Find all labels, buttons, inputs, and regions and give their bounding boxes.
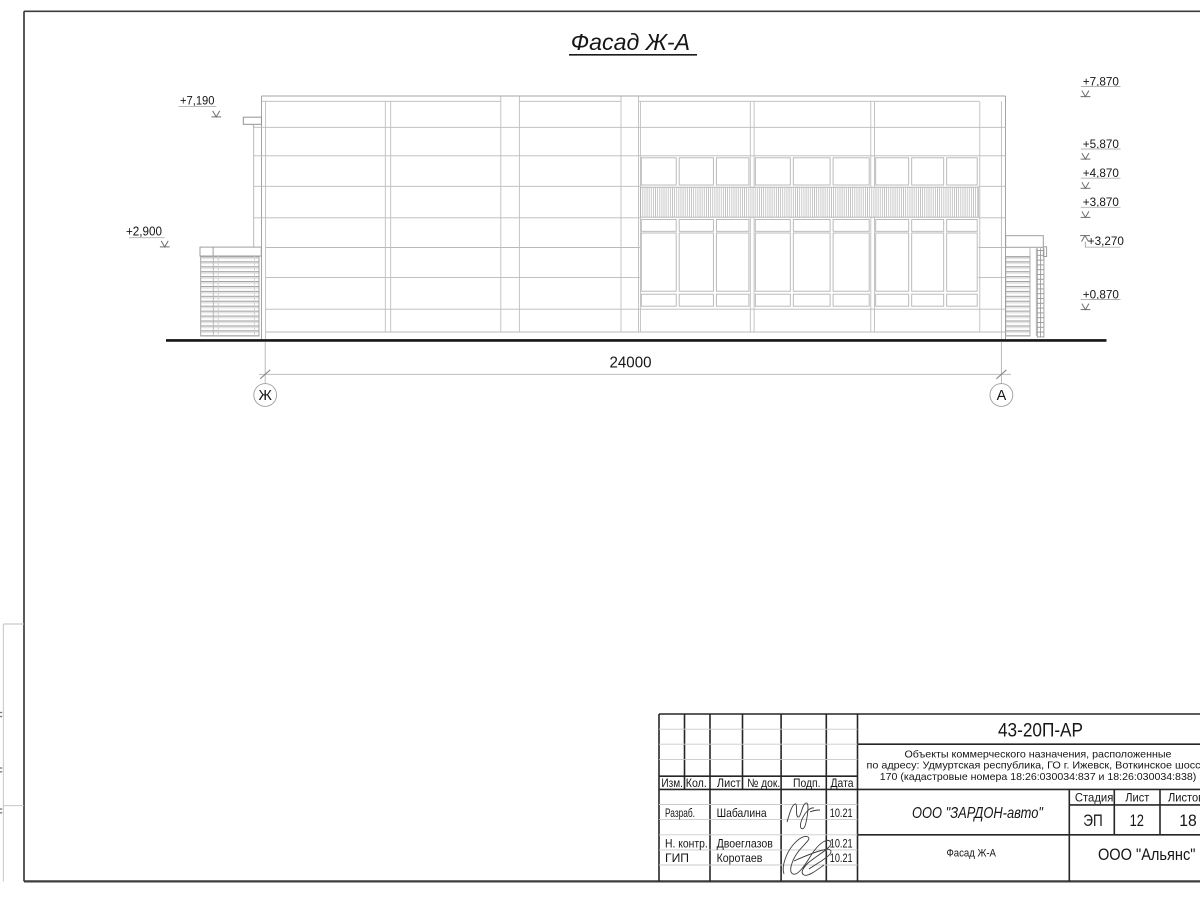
svg-text:+3,270: +3,270 bbox=[1088, 234, 1124, 248]
svg-text:ООО "ЗАРДОН-авто": ООО "ЗАРДОН-авто" bbox=[912, 805, 1044, 822]
svg-text:по адресу: Удмуртская республи: по адресу: Удмуртская республика, ГО г. … bbox=[867, 760, 1200, 772]
svg-text:18: 18 bbox=[1179, 811, 1197, 830]
svg-text:Лист: Лист bbox=[1125, 791, 1149, 805]
svg-text:Фасад Ж-А: Фасад Ж-А bbox=[946, 848, 996, 860]
svg-text:24000: 24000 bbox=[610, 355, 652, 372]
svg-text:Листов: Листов bbox=[1168, 791, 1200, 805]
svg-text:12: 12 bbox=[1130, 811, 1144, 830]
svg-text:ООО "Альянс": ООО "Альянс" bbox=[1098, 846, 1196, 864]
svg-text:170 (кадастровые номера 18:26:: 170 (кадастровые номера 18:26:030034:837… bbox=[880, 772, 1197, 783]
svg-text:Дата: Дата bbox=[831, 776, 854, 790]
svg-text:Разраб.: Разраб. bbox=[665, 806, 695, 820]
svg-text:+2,900: +2,900 bbox=[126, 224, 162, 238]
svg-text:ГИП: ГИП bbox=[665, 851, 689, 865]
svg-text:Подп.: Подп. bbox=[793, 776, 821, 790]
svg-text:Н. контр.: Н. контр. bbox=[665, 836, 708, 850]
svg-text:Фасад Ж-А: Фасад Ж-А bbox=[571, 29, 690, 55]
svg-text:Ж: Ж bbox=[259, 388, 273, 404]
svg-text:Кол.: Кол. bbox=[686, 776, 707, 790]
svg-text:Стадия: Стадия bbox=[1075, 791, 1113, 805]
svg-text:Двоеглазов: Двоеглазов bbox=[717, 836, 773, 850]
svg-text:№ док.: № док. bbox=[747, 776, 780, 790]
svg-text:ЭП: ЭП bbox=[1083, 811, 1102, 830]
svg-text:Лист: Лист bbox=[717, 776, 741, 790]
svg-text:10.21: 10.21 bbox=[830, 806, 853, 820]
svg-text:+7,190: +7,190 bbox=[180, 94, 215, 108]
svg-text:43-20П-АР: 43-20П-АР bbox=[998, 720, 1083, 742]
svg-text:Коротаев: Коротаев bbox=[717, 851, 763, 865]
svg-text:Шабалина: Шабалина bbox=[717, 806, 767, 820]
svg-text:Объекты коммерческого назначен: Объекты коммерческого назначения, распол… bbox=[905, 749, 1172, 761]
svg-text:А: А bbox=[997, 388, 1007, 404]
svg-text:10.21: 10.21 bbox=[830, 836, 853, 850]
svg-text:10.21: 10.21 bbox=[830, 851, 853, 865]
svg-text:Изм.: Изм. bbox=[661, 776, 683, 790]
